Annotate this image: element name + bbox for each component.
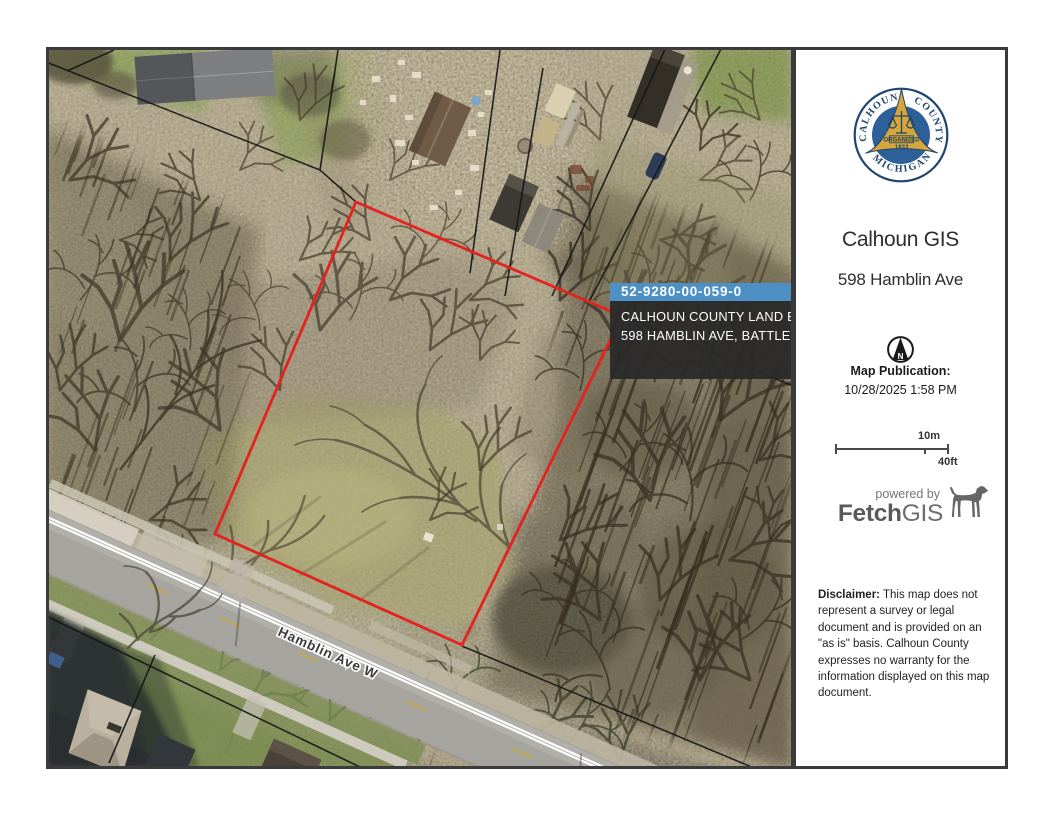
svg-text:powered by: powered by: [875, 487, 940, 501]
svg-text:1833: 1833: [895, 144, 909, 151]
svg-text:ORGANIZED: ORGANIZED: [884, 138, 921, 144]
svg-text:40ft: 40ft: [938, 456, 958, 468]
svg-text:10m: 10m: [918, 430, 940, 442]
svg-text:N: N: [898, 352, 904, 361]
svg-text:FetchGIS: FetchGIS: [838, 500, 943, 527]
